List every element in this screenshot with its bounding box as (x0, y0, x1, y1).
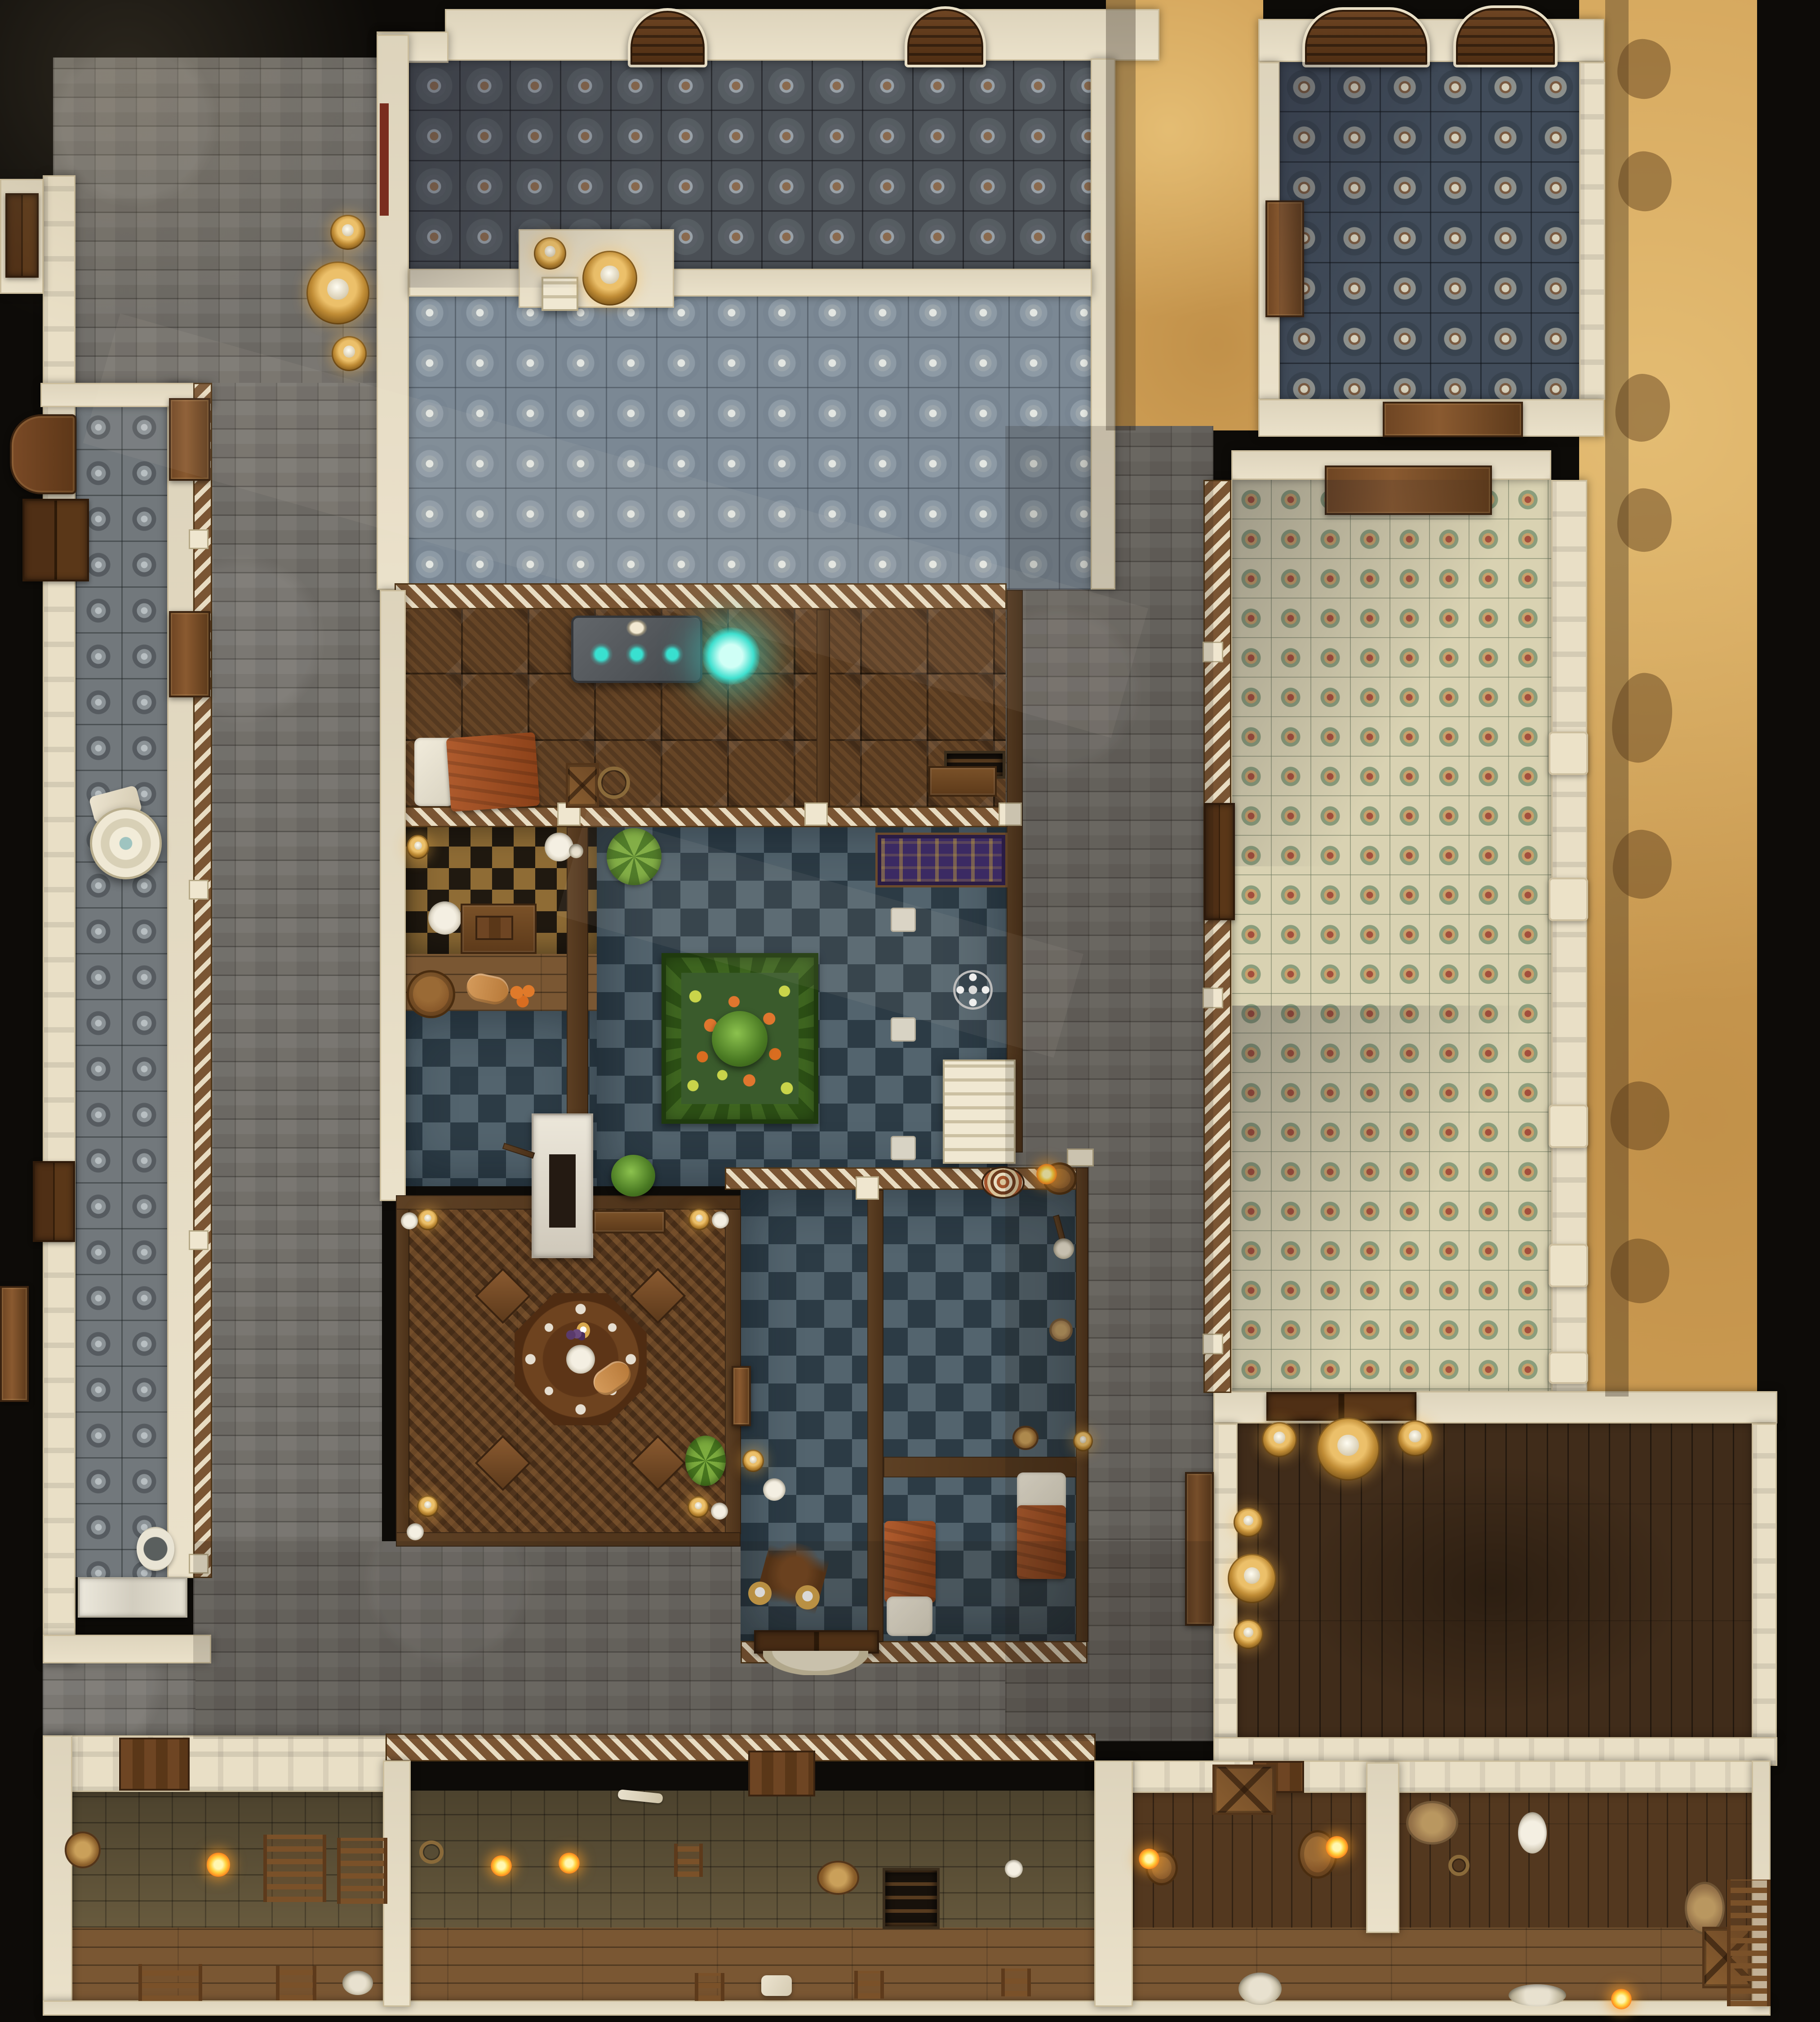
dish-dining-ne (712, 1211, 729, 1228)
cloth-walkway (761, 1975, 792, 1996)
lamp-dining-ne (688, 1209, 710, 1230)
post-fence-1 (189, 529, 209, 549)
carpet-runner (878, 835, 1005, 885)
jug-market (1005, 1860, 1023, 1878)
lamp-dining-nw (417, 1209, 439, 1230)
crate-market-1 (1212, 1765, 1276, 1815)
stone-court-west (193, 383, 382, 1666)
post-cap-2 (804, 803, 828, 826)
bedroll-blanket (446, 732, 540, 811)
lamp-dining-sw (417, 1495, 439, 1517)
lamp-dining-se (688, 1496, 709, 1518)
wall-top-main (445, 9, 1159, 61)
dish-dining-sw (407, 1523, 424, 1540)
shadow-room-nw (409, 61, 831, 288)
tray-dining (566, 1345, 595, 1374)
bowl-market-1 (342, 1971, 373, 1995)
market-post-b (1094, 1760, 1133, 2007)
corridor-floor (75, 404, 167, 1577)
flame-market-4 (1139, 1849, 1159, 1869)
wall-corridor-bottom (43, 1635, 211, 1663)
rope-coil-mid (419, 1840, 444, 1864)
shadow-hall-center (1299, 1463, 1685, 1714)
sconce-terrace-4 (1549, 1244, 1588, 1287)
grapes-dining (565, 1329, 585, 1341)
desk-dining (593, 1210, 666, 1233)
lamp-hall-w3 (1234, 1619, 1263, 1649)
cabinet-corridor-sw (0, 1286, 29, 1402)
paver-2 (891, 1017, 916, 1042)
wall-room-ne-right (1579, 62, 1605, 400)
barrel-kitchen (407, 970, 455, 1018)
oven-marble (532, 1113, 593, 1258)
market-post-c (1366, 1762, 1399, 1933)
lamp-hall-w2 (1228, 1554, 1276, 1603)
altar-runes (571, 616, 702, 683)
wall-corridor-right (167, 383, 194, 1578)
bowl-market-2 (1238, 1973, 1282, 2005)
bowls-trio (1509, 1984, 1566, 2006)
market-wall-bottom (43, 2000, 1771, 2016)
light-leak-topleft (0, 0, 449, 341)
flame-market-6 (1611, 1989, 1632, 2009)
rack-market-a (263, 1835, 326, 1902)
stall-panel-left (119, 1738, 190, 1791)
rope-coil-right (1448, 1855, 1469, 1876)
flame-market-3 (559, 1853, 580, 1874)
shadow-room-ne (1279, 62, 1468, 399)
stand-market-1 (138, 1964, 202, 2001)
shade-stone-south (193, 1541, 1213, 1739)
chest-corridor-2 (169, 611, 210, 697)
wall-hall-kitchen (395, 807, 1007, 827)
shelf-market-right (1727, 1880, 1771, 2006)
paver-3 (891, 1136, 916, 1160)
market-wall-west (43, 1735, 72, 2014)
plant-agave-dining (685, 1436, 726, 1486)
fence-corridor (193, 383, 212, 1578)
stairs-courtyard (943, 1060, 1016, 1164)
plates-kitchen (545, 833, 573, 861)
board-kitchen (475, 916, 513, 940)
dish-dining-se (711, 1503, 728, 1520)
oranges-bowl (508, 981, 537, 1009)
battlemap-canvas[interactable] (0, 0, 1820, 2022)
bench-marble-corridor (78, 1577, 187, 1618)
rack-walkway-2 (854, 1971, 884, 1999)
fountain-corridor (90, 807, 162, 879)
garden-tree (712, 1011, 768, 1067)
portal-teal (702, 627, 760, 685)
flame-market-2 (491, 1855, 512, 1876)
shadow-terrace-upper (1232, 480, 1551, 866)
rack-walkway-1 (695, 1973, 724, 2001)
plant-bush-court (611, 1155, 655, 1197)
door-corridor-west-1 (22, 499, 89, 581)
sconce-terrace-2 (1549, 878, 1588, 921)
mirror-tray-corridor (137, 1527, 174, 1571)
sconce-terrace-1 (1549, 732, 1588, 775)
wardrobe-dining (732, 1366, 751, 1426)
sconce-terrace-3 (1549, 1104, 1588, 1148)
rack-walkway-3 (1001, 1969, 1031, 1996)
flame-market-5 (1326, 1836, 1348, 1858)
post-cap-5 (856, 1176, 879, 1200)
door-market-mid (748, 1751, 815, 1796)
chair-market (674, 1844, 703, 1877)
bench-entrance (928, 766, 997, 797)
plate-market-right (1518, 1812, 1547, 1853)
market-counter-left (43, 1735, 386, 1792)
lamp-hall-n1 (1262, 1422, 1297, 1457)
rack-market-b (337, 1838, 387, 1904)
post-fence-3 (189, 1230, 209, 1250)
shadow-terrace-lower (1232, 1006, 1551, 1392)
spinning-wheel (598, 767, 630, 799)
door-hall-north (1266, 1392, 1416, 1421)
flame-market-1 (207, 1852, 230, 1877)
wall-hall-right (1752, 1423, 1777, 1739)
hat-straw (1406, 1801, 1458, 1845)
window-shelf-ne-2 (1453, 5, 1558, 67)
wall-west-mid (380, 590, 406, 1201)
lamp-kitchen (407, 835, 429, 859)
bowl-flour (428, 901, 462, 935)
shadow-sand-upper-wall (1106, 0, 1136, 430)
lamp-hall-w1 (1234, 1508, 1263, 1537)
dish-bedroom-hall (763, 1478, 786, 1501)
lamp-hall-n2 (1397, 1420, 1433, 1456)
window-shelf-ne-1 (1302, 7, 1430, 67)
beam-dining-left (396, 1209, 409, 1534)
stone-corridor-end (43, 1663, 195, 1738)
lamp-bedroom-hall (742, 1450, 764, 1472)
door-corridor-west-2 (33, 1161, 75, 1242)
market-counter-right (1094, 1760, 1771, 1793)
dish-dining-nw (401, 1212, 418, 1229)
post-fence-2 (189, 880, 209, 900)
cabinet-corridor-nw (10, 414, 76, 494)
plate-market-mid (817, 1861, 859, 1895)
cellar-hatch (883, 1868, 940, 1929)
stand-market-2 (276, 1966, 316, 2000)
market-floor-mid (411, 1791, 1094, 1946)
dresser-room-ne (1383, 402, 1523, 437)
plate-bronze-left (65, 1831, 101, 1868)
sconce-terrace-5 (1549, 1352, 1588, 1384)
spinning-crate (566, 763, 599, 808)
